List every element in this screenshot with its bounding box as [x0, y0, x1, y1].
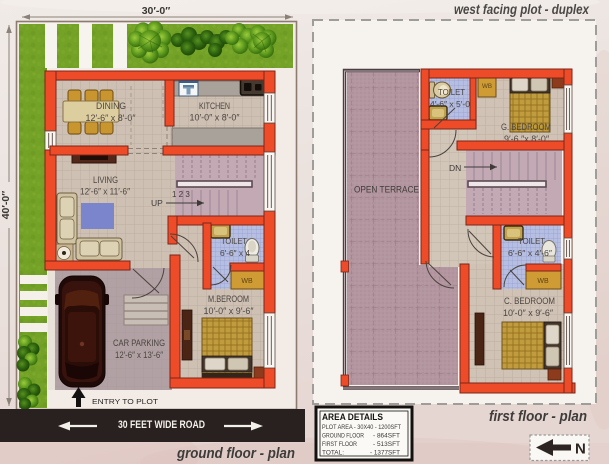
- svg-text:- 864SFT: - 864SFT: [373, 433, 400, 440]
- svg-text:6′-6″ x 4: 6′-6″ x 4: [220, 248, 250, 258]
- svg-text:west facing plot - duplex: west facing plot - duplex: [454, 1, 590, 17]
- svg-text:N: N: [575, 441, 586, 458]
- svg-text:OPEN TERRACE: OPEN TERRACE: [354, 185, 419, 195]
- svg-text:4′-6″ x 5′-0″: 4′-6″ x 5′-0″: [430, 100, 473, 109]
- svg-text:LIVING: LIVING: [93, 175, 118, 185]
- svg-text:PLOT AREA - 30X40 - 1200SFT: PLOT AREA - 30X40 - 1200SFT: [322, 424, 401, 431]
- svg-text:- 1377SFT: - 1377SFT: [370, 450, 400, 457]
- svg-text:1 2 3: 1 2 3: [172, 190, 190, 199]
- svg-text:30 FEET WIDE ROAD: 30 FEET WIDE ROAD: [118, 419, 205, 431]
- svg-text:UP: UP: [151, 198, 163, 208]
- svg-text:WB: WB: [482, 83, 492, 90]
- svg-text:12′-6″ x 11′-6″: 12′-6″ x 11′-6″: [80, 187, 131, 197]
- svg-text:TOILET: TOILET: [518, 236, 545, 246]
- svg-text:DINING: DINING: [96, 101, 126, 111]
- svg-text:DN: DN: [449, 163, 461, 173]
- svg-text:TOILET: TOILET: [438, 87, 465, 97]
- svg-text:10′-0″ x 8′-0″: 10′-0″ x 8′-0″: [190, 113, 241, 123]
- svg-text:WB: WB: [241, 278, 253, 285]
- svg-text:10′-0″ x 9′-6″: 10′-0″ x 9′-6″: [503, 308, 554, 318]
- svg-text:KITCHEN: KITCHEN: [199, 101, 230, 111]
- svg-text:FIRST FLOOR: FIRST FLOOR: [322, 441, 357, 448]
- svg-text:AREA DETAILS: AREA DETAILS: [322, 412, 383, 423]
- svg-text:TOILET: TOILET: [221, 236, 247, 246]
- svg-text:40′-0″: 40′-0″: [0, 191, 12, 220]
- svg-text:CAR PARKING: CAR PARKING: [113, 338, 165, 348]
- svg-text:M.BEROOM: M.BEROOM: [208, 294, 249, 304]
- svg-text:C. BEDROOM: C. BEDROOM: [504, 296, 555, 306]
- svg-text:ground floor - plan: ground floor - plan: [176, 445, 295, 462]
- svg-text:- 513SFT: - 513SFT: [373, 441, 400, 448]
- svg-text:10′-0″ x 9′-6″: 10′-0″ x 9′-6″: [204, 306, 255, 316]
- svg-text:12′-6″ x 13′-6″: 12′-6″ x 13′-6″: [115, 350, 164, 360]
- svg-text:ENTRY TO PLOT: ENTRY TO PLOT: [92, 397, 158, 406]
- svg-text:G. BEDROOM: G. BEDROOM: [501, 122, 551, 132]
- svg-text:WB: WB: [537, 278, 549, 285]
- svg-text:first floor - plan: first floor - plan: [489, 408, 587, 425]
- svg-text:6′-6″ x 4′-6″: 6′-6″ x 4′-6″: [508, 249, 552, 258]
- svg-text:12′-6″ x 8′-0″: 12′-6″ x 8′-0″: [86, 113, 137, 123]
- svg-text:GROUND FLOOR: GROUND FLOOR: [322, 433, 364, 440]
- svg-text:30′-0″: 30′-0″: [142, 5, 171, 17]
- svg-text:TOTAL:: TOTAL:: [322, 450, 344, 457]
